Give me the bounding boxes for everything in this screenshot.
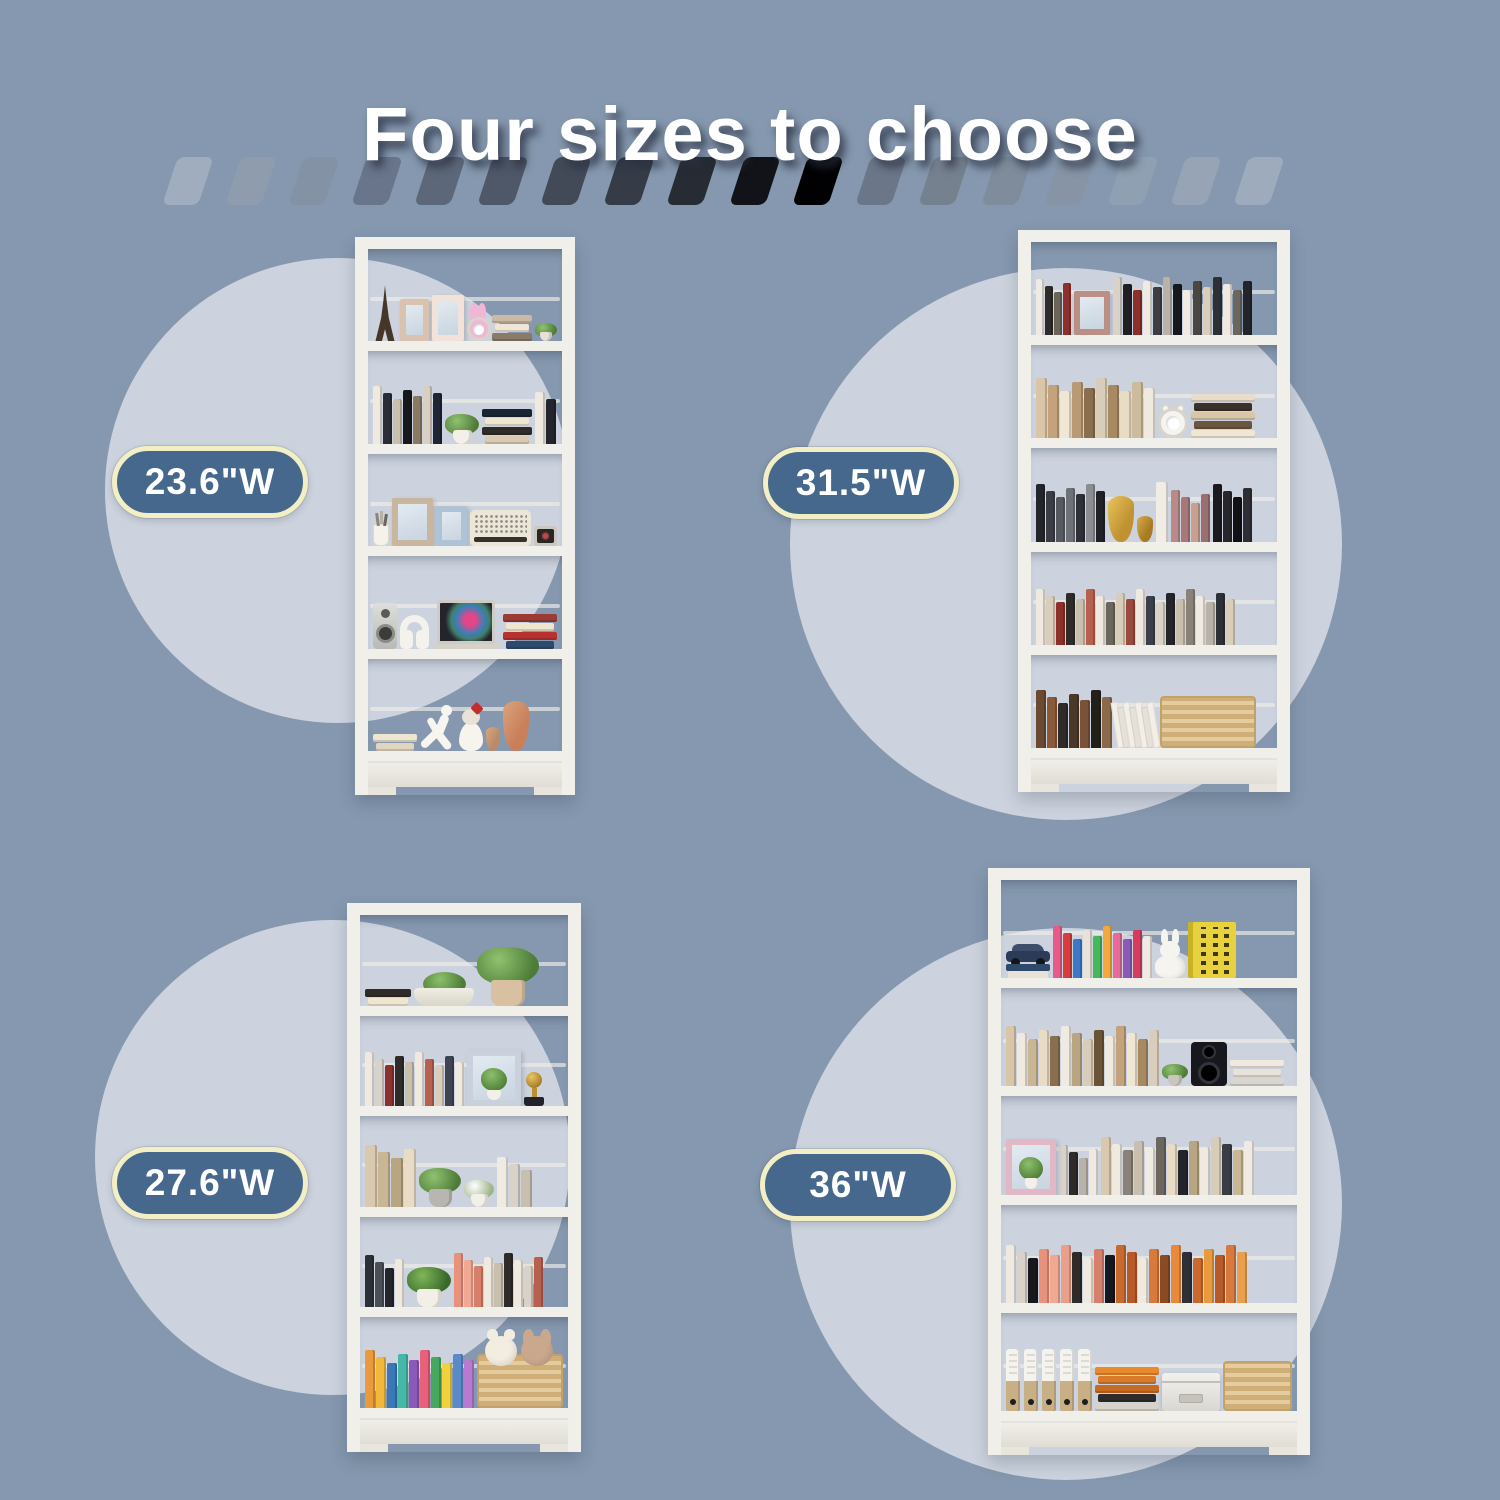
- shelf-cell: [1031, 552, 1277, 655]
- size-label: 27.6"W: [145, 1162, 275, 1204]
- bookcase-graphic-36: [988, 868, 1310, 1455]
- item-vase: [486, 727, 500, 751]
- bookcase-plinth: [1031, 758, 1277, 784]
- item-speaker: [373, 603, 397, 649]
- item-plant: [407, 1267, 451, 1307]
- shelf-items: [1006, 922, 1292, 978]
- item-books: [1036, 279, 1071, 335]
- bookcase-foot: [368, 787, 396, 795]
- item-books: [1006, 1245, 1247, 1303]
- page-title: Four sizes to choose: [0, 91, 1500, 178]
- bookcase-graphic-23-6: [355, 237, 575, 795]
- item-wicker-basket: [1223, 1361, 1292, 1411]
- shelf-items: [365, 1050, 563, 1106]
- item-picture-frame: [392, 498, 433, 546]
- item-runner-figurine: [420, 705, 456, 751]
- item-frame-with-plant: [1006, 1139, 1056, 1195]
- item-books: [1036, 690, 1112, 748]
- item-yellow-book: [1188, 922, 1236, 978]
- bookcase-feet: [1031, 784, 1277, 792]
- bookcase-foot: [1001, 1447, 1029, 1455]
- item-girl-figurine: [459, 709, 483, 751]
- bookcase-feet: [368, 787, 562, 795]
- item-vase: [1108, 496, 1134, 542]
- item-plush-toy: [521, 1336, 553, 1366]
- item-headphones: [400, 615, 429, 649]
- item-books: [365, 1052, 464, 1106]
- shelf-cell: [1001, 1096, 1297, 1204]
- item-picture-frame: [432, 295, 464, 341]
- bookcase-graphic-27-6: [347, 903, 581, 1452]
- shelf-cell: [1001, 988, 1297, 1096]
- shelf-items: [365, 1145, 563, 1207]
- shelf-items: [1036, 378, 1272, 438]
- shelf-items: [1036, 690, 1272, 748]
- item-books: [1036, 589, 1235, 645]
- item-book-stack: [503, 613, 557, 649]
- bookcase-feet: [1001, 1447, 1297, 1455]
- item-books: [365, 1255, 404, 1307]
- shelf-items: [373, 498, 557, 546]
- shelf-items: [1006, 1026, 1292, 1086]
- shelf-items: [1036, 277, 1272, 335]
- shelf-cell: [1031, 345, 1277, 448]
- item-books: [454, 1253, 543, 1307]
- shelf-cell: [368, 454, 562, 556]
- item-speaker-black: [1191, 1042, 1227, 1086]
- item-books: [497, 1157, 532, 1207]
- item-books: [1156, 482, 1168, 542]
- shelf-cell: [1031, 448, 1277, 551]
- item-books: [1053, 926, 1152, 978]
- bookcase-feet: [360, 1444, 568, 1452]
- shelf-items: [365, 947, 563, 1006]
- item-file-binders: [1006, 1349, 1092, 1411]
- item-trophy: [524, 1072, 544, 1106]
- item-books: [1213, 484, 1252, 542]
- item-toy-car: [1006, 944, 1050, 978]
- bookcase-foot: [1269, 1447, 1297, 1455]
- shelf-items: [1006, 1137, 1292, 1195]
- item-bowl-plant: [414, 972, 474, 1006]
- shelf-items: [373, 285, 557, 341]
- item-book-stack: [373, 733, 417, 751]
- shelf-cell: [1001, 880, 1297, 988]
- item-wicker-basket: [477, 1354, 563, 1408]
- item-vase: [1137, 516, 1153, 542]
- size-badge: 36"W: [760, 1149, 956, 1221]
- bookcase-foot: [540, 1444, 568, 1452]
- bookcase-plinth: [360, 1418, 568, 1444]
- shelf-items: [1006, 1349, 1292, 1411]
- item-books: [365, 1350, 474, 1408]
- item-mini-tv: [534, 526, 557, 546]
- bookcase-plinth: [1001, 1421, 1297, 1447]
- item-plant: [445, 414, 479, 444]
- shelf-items: [1006, 1245, 1292, 1303]
- bookcase-foot: [1249, 784, 1277, 792]
- shelf-items: [373, 600, 557, 649]
- item-picture-frame: [1074, 291, 1110, 335]
- item-plant: [535, 323, 557, 341]
- item-books: [1006, 1026, 1159, 1086]
- shelf-items: [365, 1350, 563, 1408]
- shelf-items: [1036, 589, 1272, 645]
- shelf-cell: [1001, 1205, 1297, 1313]
- item-picture-frame: [436, 506, 467, 546]
- shelf-cell: [360, 1016, 568, 1117]
- item-frame-with-plant: [467, 1050, 521, 1106]
- item-book-stack: [365, 988, 411, 1006]
- item-books: [1171, 490, 1210, 542]
- item-clock: [1158, 404, 1188, 438]
- size-badge: 23.6"W: [112, 446, 308, 518]
- item-laptop: [432, 600, 500, 649]
- item-storage-box: [1162, 1373, 1220, 1411]
- shelf-items: [1036, 482, 1272, 542]
- item-books: [1113, 277, 1252, 335]
- size-label: 23.6"W: [145, 461, 275, 503]
- shelf-cell: [360, 1217, 568, 1318]
- shelf-items: [365, 1253, 563, 1307]
- item-books: [535, 392, 556, 444]
- item-wicker-basket: [1160, 696, 1256, 748]
- item-magazines: [1115, 702, 1157, 748]
- item-plant: [464, 1180, 494, 1207]
- shelf-items: [373, 701, 557, 751]
- item-plant: [477, 947, 539, 1006]
- item-plush-toy: [485, 1336, 517, 1366]
- item-books: [365, 1145, 416, 1207]
- bookcase-plinth: [368, 761, 562, 787]
- shelf-cell: [368, 249, 562, 351]
- shelf-cell: [360, 1116, 568, 1217]
- item-book-stack: [492, 314, 532, 341]
- shelf-cell: [360, 915, 568, 1016]
- item-books: [1101, 1137, 1254, 1195]
- item-plant: [419, 1168, 461, 1207]
- shelf-items: [373, 386, 557, 444]
- item-retro-radio: [470, 510, 531, 546]
- shelf-cell: [1031, 242, 1277, 345]
- shelf-cell: [1031, 655, 1277, 758]
- item-book-stack: [1230, 1059, 1284, 1086]
- item-book-stack: [482, 408, 532, 444]
- item-book-stack: [1095, 1366, 1159, 1411]
- size-badge: 27.6"W: [112, 1147, 308, 1219]
- item-pencil-cup: [373, 511, 389, 546]
- shelf-cell: [368, 556, 562, 658]
- size-badge: 31.5"W: [763, 447, 959, 519]
- item-books: [1036, 378, 1155, 438]
- item-books: [1059, 1145, 1098, 1195]
- item-books: [373, 386, 442, 444]
- bookcase-foot: [360, 1444, 388, 1452]
- shelf-cell: [360, 1317, 568, 1418]
- item-picture-frame: [400, 299, 429, 341]
- shelf-cell: [368, 659, 562, 761]
- size-label: 36"W: [809, 1164, 907, 1206]
- size-label: 31.5"W: [796, 462, 926, 504]
- item-clock: [467, 303, 489, 341]
- item-vase: [503, 701, 529, 751]
- bookcase-graphic-31-5: [1018, 230, 1290, 792]
- item-plant: [1162, 1064, 1188, 1086]
- bookcase-foot: [534, 787, 562, 795]
- shelf-cell: [368, 351, 562, 453]
- product-size-infographic: Four sizes to choose 23.6"W 31.5"W 27.6"…: [0, 0, 1500, 1500]
- item-bunny-figurine: [1155, 941, 1185, 978]
- shelf-cell: [1001, 1313, 1297, 1421]
- item-eiffel-tower: [373, 285, 397, 341]
- bookcase-foot: [1031, 784, 1059, 792]
- item-books: [1036, 484, 1105, 542]
- item-book-stack: [1191, 393, 1255, 438]
